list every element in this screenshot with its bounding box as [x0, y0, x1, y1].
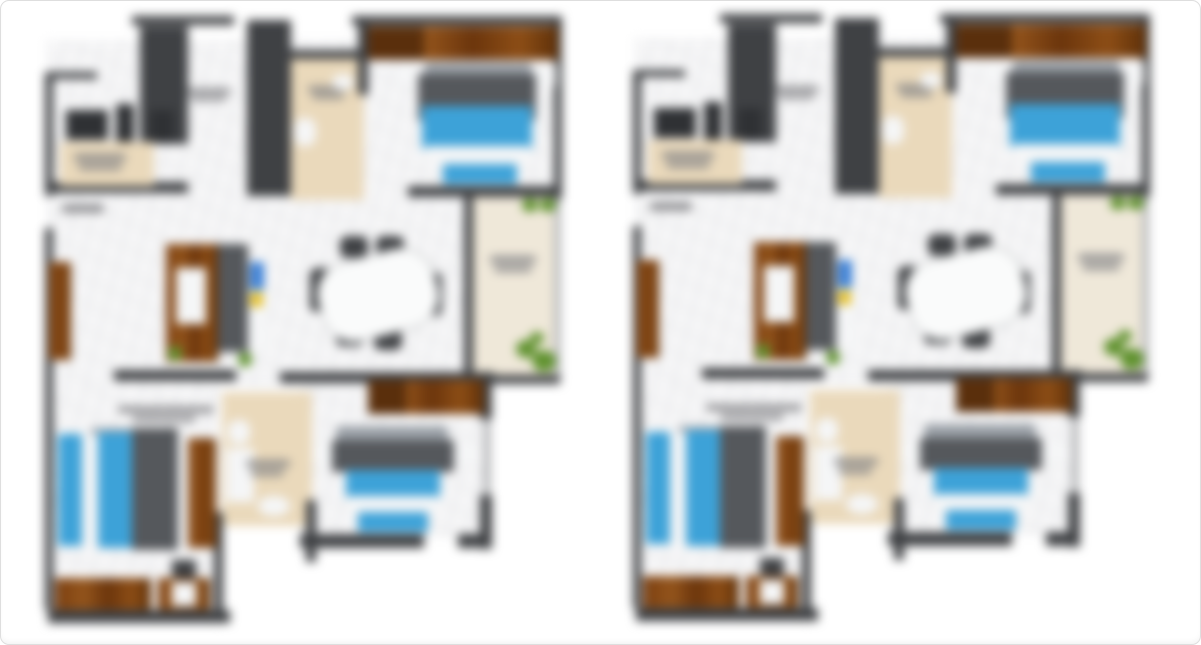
dining-chair-top-1 [340, 236, 368, 258]
tv-unit-gray [806, 242, 836, 350]
wall-top-left-band [720, 14, 822, 23]
wall-middle-left [114, 370, 236, 381]
bedroom-bl-label-blob-1 [706, 404, 802, 411]
bed-bl-blue-1 [646, 432, 670, 544]
window-bedroom-br [1071, 417, 1079, 493]
wall-bedroom-br-bottom [300, 534, 424, 548]
wall-left-lower [45, 378, 53, 610]
bed-bl-blanket [720, 426, 766, 548]
balcony-plant-bottom-3 [1118, 330, 1132, 342]
bed-tr-runner [443, 164, 517, 184]
wall-top-right-band [940, 14, 1150, 23]
balcony-plant-top-2 [540, 198, 556, 212]
console-left [49, 262, 71, 360]
tv-unit-inner [764, 266, 794, 322]
tv-unit-inner [176, 268, 206, 324]
bath-bottom-label-blob-2 [838, 468, 872, 474]
wall-kitchen-top [633, 70, 685, 77]
wall-bottom-left [48, 610, 230, 623]
kitchen-appliance-3 [738, 108, 762, 140]
bed-br-runner [946, 510, 1016, 530]
plant-small-1 [168, 346, 182, 361]
bed-tr-blanket [422, 106, 532, 150]
wall-balcony-left [464, 195, 473, 387]
bed-tr-runner [1031, 162, 1105, 182]
entry-label-blob [650, 202, 692, 211]
nightstand-tr-left [396, 64, 416, 84]
shelf-item-blue [250, 262, 264, 290]
kitchen-appliance-2 [704, 102, 722, 142]
window-bedroom-br [483, 419, 491, 495]
kitchen-appliance-1 [66, 110, 108, 140]
bed-bl-white-gap [670, 432, 686, 544]
balcony-label-blob-1 [1078, 254, 1124, 261]
bed-bl-blanket [132, 428, 178, 550]
bed-bl-blue-1 [58, 434, 82, 546]
bath-top-label-blob-2 [900, 92, 932, 97]
balcony-plant-bottom-3 [530, 332, 544, 344]
wall-top-left-band [132, 16, 234, 25]
balcony-plant-top-2 [1128, 196, 1144, 210]
bed-bl-blue-2 [98, 432, 132, 548]
balcony-plant-top-1 [1110, 196, 1126, 210]
wall-balcony-right [554, 199, 561, 379]
wall-bottom-left [636, 608, 818, 621]
kitchen-appliance-1 [654, 108, 696, 138]
balcony-label-blob-2 [1082, 264, 1120, 270]
wardrobe-bl [188, 438, 216, 548]
wardrobe-br-dark [368, 380, 406, 414]
plant-small-1 [756, 344, 770, 359]
dresser-1 [55, 578, 151, 610]
nightstand-tr-left [984, 62, 1004, 82]
tv-unit-gray [218, 244, 248, 352]
nightstand-tr-right [534, 64, 556, 86]
bed-br-blanket [346, 470, 440, 498]
floor-plan-right [628, 12, 1153, 624]
bed-br-headboard [332, 440, 454, 472]
console-left [637, 260, 659, 358]
bed-bl-white-gap [82, 434, 98, 546]
balcony-plant-bottom-2 [532, 350, 556, 372]
balcony-label-blob-2 [494, 266, 532, 272]
bath-bottom-label-blob-2 [250, 470, 284, 476]
wall-bedroom-br-bottom-stub [1046, 532, 1080, 546]
wall-bedroom-tr-bottom [996, 184, 1148, 195]
wardrobe-br-dark [956, 378, 994, 412]
wall-kitchen-top [45, 72, 97, 79]
wardrobe-tr-dark [956, 24, 1012, 58]
wall-top-right-band [352, 16, 562, 25]
wall-kitchen-left [45, 72, 53, 196]
bed-bl-blue-2 [686, 430, 720, 546]
balcony-plant-bottom-2 [1120, 348, 1144, 370]
kitchen-label-blob-2 [666, 162, 710, 168]
bath-top-toilet [294, 118, 316, 146]
plant-small-2 [826, 350, 840, 365]
nightstand-br-right [1044, 440, 1064, 462]
kitchen-label-blob-1 [74, 154, 126, 161]
hall-label-blob-1 [187, 88, 231, 94]
wall-bedroom-tr-left [946, 21, 956, 93]
wall-bedroom-tr-bottom [408, 186, 560, 197]
wall-bedroom-tr-left [358, 23, 368, 95]
wall-bathroom-bottom-right [306, 500, 316, 562]
bath-top-toilet [882, 116, 904, 144]
wall-balcony-right [1142, 197, 1149, 377]
dresser-2-inset [760, 580, 784, 604]
wall-bedroom-br-bottom [888, 532, 1012, 546]
wall-balcony-left [1052, 193, 1061, 385]
bed-tr-blanket [1010, 104, 1120, 148]
wall-bedroom-br-bottom-stub [458, 534, 492, 548]
dresser-item-dark [172, 560, 196, 578]
bed-br-blanket [934, 468, 1028, 496]
shelf-item-blue [838, 260, 852, 288]
bath-top-label-blob-2 [312, 94, 344, 99]
bath-bottom-toilet [228, 420, 250, 444]
nightstand-br-right [456, 442, 476, 464]
wall-bathroom-top [878, 48, 952, 57]
wardrobe-tr-dark [368, 26, 424, 60]
dresser-2-inset [172, 582, 196, 606]
plant-small-2 [238, 352, 252, 367]
balcony-label-blob-1 [490, 256, 536, 263]
wall-bathroom-top [290, 50, 364, 59]
shelf-item-yellow [838, 290, 851, 305]
bath-bottom-label-blob-1 [834, 458, 878, 465]
bath-bottom-sink [258, 496, 290, 516]
wardrobe-bl [776, 436, 804, 546]
bed-br-headboard [920, 438, 1042, 470]
kitchen-label-blob-2 [78, 164, 122, 170]
bath-bottom-toilet [816, 418, 838, 442]
bed-tr-sheet [425, 146, 530, 166]
shelf-item-yellow [250, 292, 263, 307]
stage [0, 0, 1201, 645]
hall-label-blob-2 [779, 94, 815, 99]
balcony-plant-top-1 [522, 198, 538, 212]
bed-br-runner [358, 512, 428, 532]
bath-bottom-sink [846, 494, 878, 514]
kitchen-label-blob-1 [662, 152, 714, 159]
wall-middle-left [702, 368, 824, 379]
kitchen-appliance-2 [116, 104, 134, 144]
wardrobe-column-b [247, 20, 291, 196]
wall-kitchen-left [633, 70, 641, 194]
floor-plan-left [40, 14, 565, 626]
bed-tr-sheet [1013, 144, 1118, 164]
entry-label-blob [62, 204, 104, 213]
dresser-1 [643, 576, 739, 608]
hall-label-blob-2 [191, 96, 227, 101]
nightstand-tr-right [1122, 62, 1144, 84]
bedroom-bl-label-blob-1 [118, 406, 214, 413]
wardrobe-column-b [835, 18, 879, 194]
dining-chair-top-1 [928, 234, 956, 256]
wall-bathroom-bottom-right [894, 498, 904, 560]
dresser-item-dark [760, 558, 784, 576]
bath-top-sink [332, 74, 354, 90]
bedroom-bl-label-blob-2 [132, 416, 196, 422]
bath-top-sink [920, 72, 942, 88]
bath-bottom-label-blob-1 [246, 460, 290, 467]
bedroom-bl-label-blob-2 [720, 414, 784, 420]
hall-label-blob-1 [775, 86, 819, 92]
wall-left-lower [633, 376, 641, 608]
kitchen-appliance-3 [150, 110, 174, 142]
